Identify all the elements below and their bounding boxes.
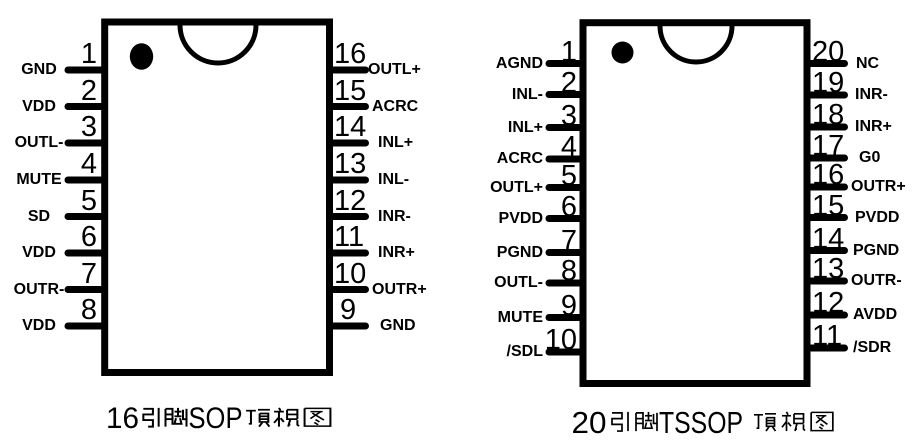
svg-text:TSSOP: TSSOP <box>659 405 743 440</box>
svg-text:SOP: SOP <box>189 402 243 435</box>
svg-text:16: 16 <box>106 402 139 435</box>
svg-text:20: 20 <box>572 405 607 440</box>
